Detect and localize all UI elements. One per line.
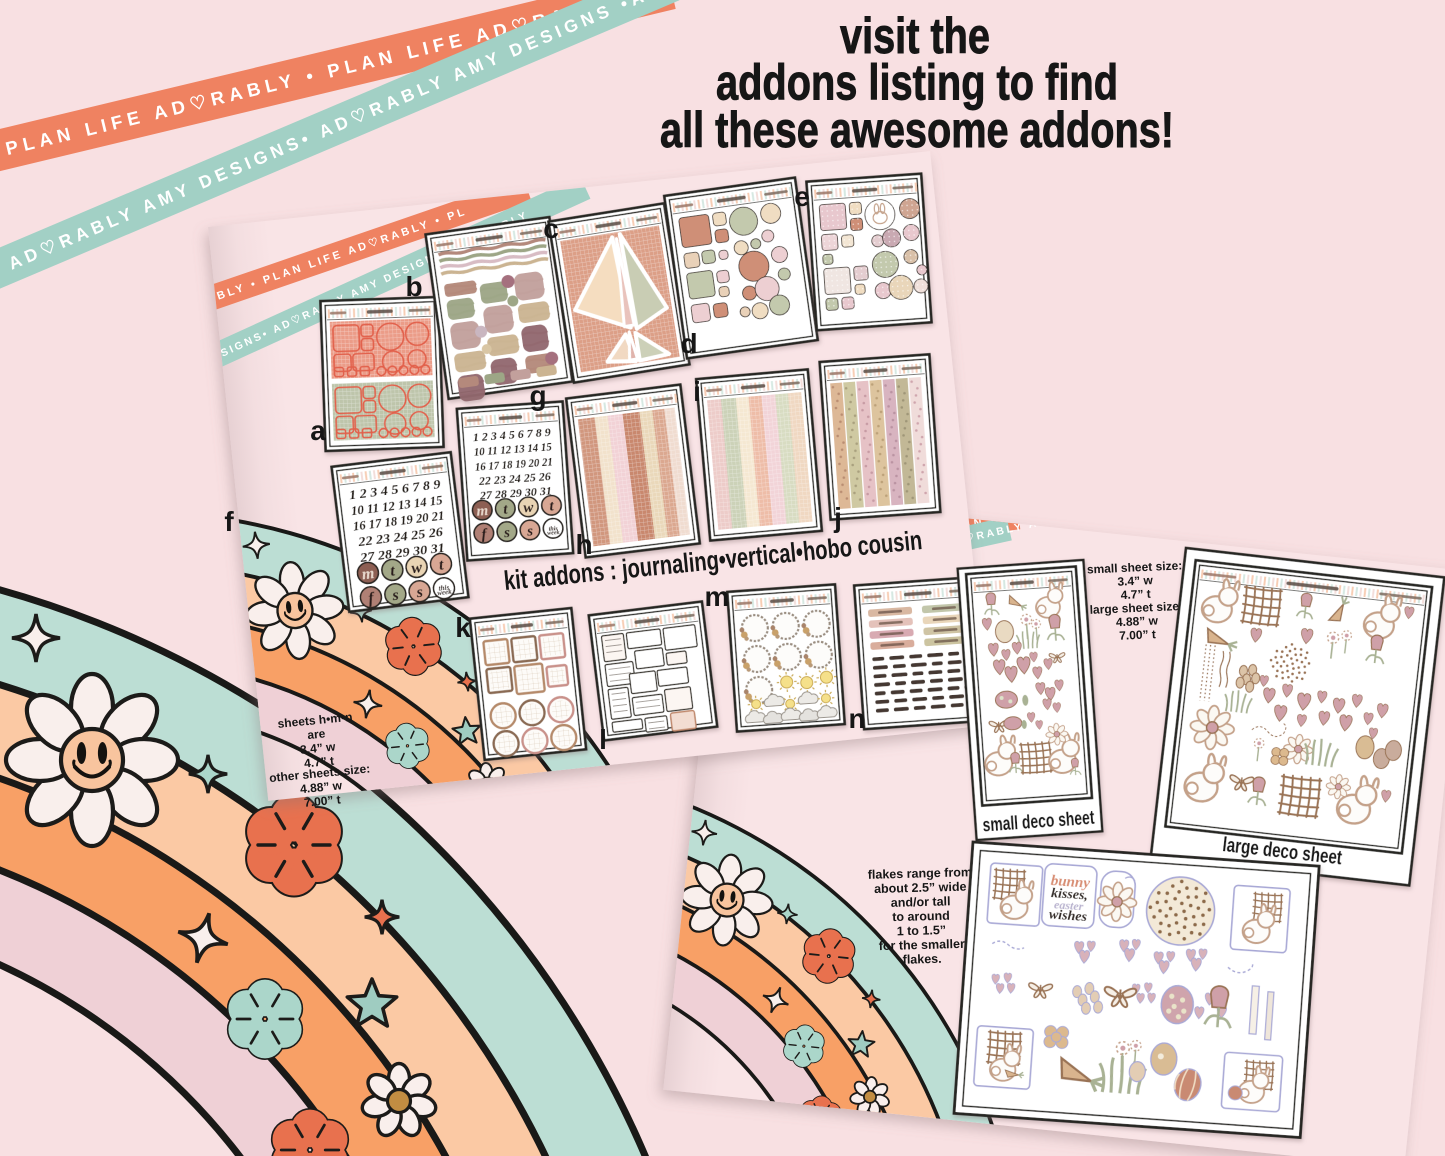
- svg-text:about 2.5” wide: about 2.5” wide: [874, 880, 967, 896]
- svg-text:for the smaller: for the smaller: [879, 937, 966, 953]
- svg-text:c: c: [543, 213, 559, 244]
- svg-text:s: s: [526, 523, 534, 539]
- svg-text:g: g: [529, 380, 546, 411]
- svg-text:s: s: [503, 525, 511, 541]
- svg-text:m: m: [361, 565, 375, 583]
- svg-text:week: week: [547, 530, 560, 537]
- svg-text:n: n: [848, 703, 865, 734]
- svg-text:b: b: [405, 271, 422, 302]
- svg-text:m: m: [476, 503, 489, 520]
- svg-text:flakes.: flakes.: [902, 952, 941, 967]
- svg-text:k: k: [455, 612, 471, 643]
- svg-text:wishes: wishes: [1048, 908, 1088, 926]
- svg-text:h: h: [575, 529, 592, 560]
- svg-text:f: f: [224, 506, 234, 537]
- svg-text:j: j: [833, 502, 842, 533]
- svg-text:a: a: [310, 415, 326, 446]
- svg-text:to around: to around: [892, 909, 950, 925]
- svg-text:and/or tall: and/or tall: [891, 894, 951, 910]
- svg-text:all these awesome addons!: all these awesome addons!: [660, 102, 1174, 158]
- svg-text:7.00” t: 7.00” t: [1119, 627, 1156, 643]
- svg-text:i: i: [693, 376, 701, 407]
- svg-text:1 to 1.5”: 1 to 1.5”: [897, 923, 947, 938]
- svg-text:m: m: [705, 581, 730, 612]
- svg-text:d: d: [680, 328, 697, 359]
- svg-text:e: e: [794, 181, 810, 212]
- svg-text:l: l: [599, 724, 607, 755]
